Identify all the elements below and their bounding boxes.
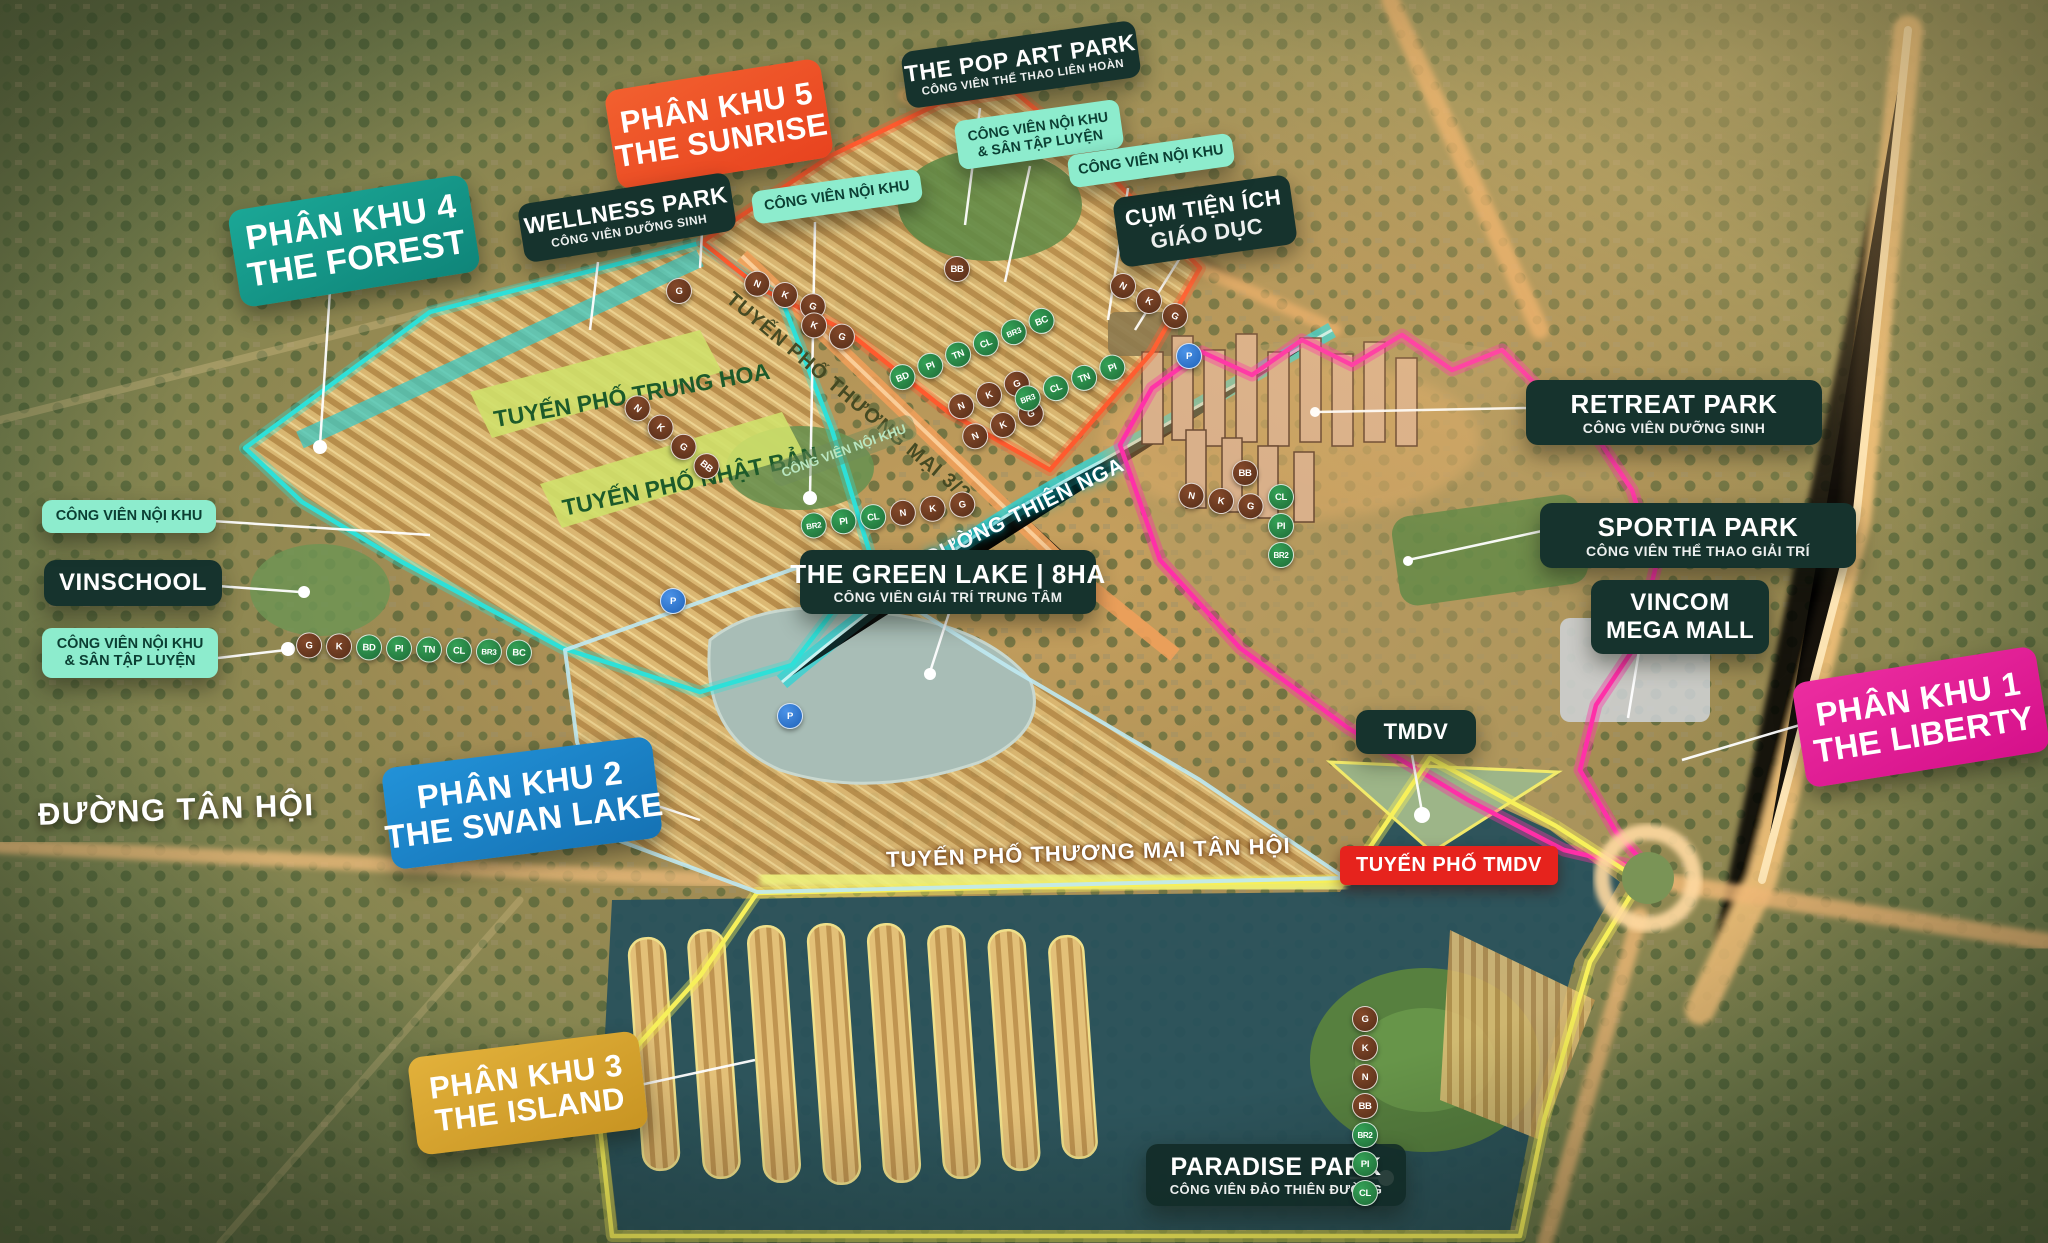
amenity-marker-k: K [1206, 486, 1236, 516]
amenity-marker-tn: TN [416, 636, 443, 663]
amenity-marker-bb: BB [1232, 460, 1258, 486]
park-subtitle: CÔNG VIÊN GIẢI TRÍ TRUNG TÂM [834, 590, 1063, 605]
park-badge-retreat[interactable]: RETREAT PARK CÔNG VIÊN DƯỠNG SINH [1526, 380, 1822, 445]
amenity-marker-g: G [1235, 491, 1265, 521]
amenity-marker-cl: CL [1268, 484, 1294, 510]
amenity-marker-p: P [660, 588, 686, 614]
amenity-marker-g: G [666, 278, 692, 304]
amenity-marker-p: P [777, 703, 803, 729]
amenity-marker-br2: BR2 [1268, 542, 1294, 568]
facility-label: TMDV [1384, 719, 1449, 745]
amenity-marker-group: GKNBBBR2PICL [1352, 1006, 1378, 1206]
amenity-marker-n: N [1352, 1064, 1378, 1090]
amenity-marker-bc: BC [505, 639, 532, 666]
masterplan-map: TUYẾN PHỐ TRUNG HOA TUYẾN PHỐ NHẬT BẢN T… [0, 0, 2048, 1243]
amenity-marker-group: CLPIBR2 [1268, 484, 1294, 568]
amenity-marker-g: G [948, 490, 977, 519]
amenity-marker-group: G [666, 278, 692, 304]
amenity-marker-group: P [777, 703, 803, 729]
park-badge-sportia[interactable]: SPORTIA PARK CÔNG VIÊN THỂ THAO GIẢI TRÍ [1540, 503, 1856, 568]
facility-line1: VINCOM [1630, 589, 1730, 617]
facility-line2: MEGA MALL [1606, 617, 1754, 645]
street-badge-tmdv[interactable]: TUYẾN PHỐ TMDV [1340, 846, 1558, 885]
amenity-marker-bd: BD [356, 634, 383, 661]
amenity-marker-bb: BB [1352, 1093, 1378, 1119]
amenity-marker-pi: PI [1268, 513, 1294, 539]
park-title: RETREAT PARK [1570, 389, 1777, 420]
amenity-marker-cl: CL [446, 637, 473, 664]
amenity-marker-cl: CL [1352, 1180, 1378, 1206]
amenity-marker-br3: BR3 [476, 638, 503, 665]
mint-badge-noi-khu-left[interactable]: CÔNG VIÊN NỘI KHU [42, 500, 216, 533]
amenity-marker-pi: PI [829, 507, 858, 536]
amenity-marker-g: G [296, 632, 323, 659]
park-title: SPORTIA PARK [1598, 512, 1799, 543]
park-title: THE GREEN LAKE | 8HA [790, 559, 1105, 590]
amenity-marker-pi: PI [386, 635, 413, 662]
park-badge-green-lake[interactable]: THE GREEN LAKE | 8HA CÔNG VIÊN GIẢI TRÍ … [800, 550, 1096, 614]
amenity-marker-br2: BR2 [799, 511, 828, 540]
amenity-marker-pi: PI [1352, 1151, 1378, 1177]
mint-badge-noi-khu-san-left[interactable]: CÔNG VIÊN NỘI KHU & SÂN TẬP LUYỆN [42, 628, 218, 678]
park-subtitle: CÔNG VIÊN DƯỠNG SINH [1583, 420, 1765, 436]
facility-badge-vinschool[interactable]: VINSCHOOL [44, 560, 222, 606]
amenity-marker-cl: CL [858, 502, 887, 531]
park-subtitle: CÔNG VIÊN ĐẢO THIÊN ĐƯỜNG [1170, 1182, 1382, 1197]
amenity-marker-p: P [1176, 343, 1202, 369]
amenity-marker-g: G [1352, 1006, 1378, 1032]
amenity-marker-k: K [1352, 1035, 1378, 1061]
amenity-marker-group: P [1176, 343, 1202, 369]
amenity-marker-br2: BR2 [1352, 1122, 1378, 1148]
facility-badge-tmdv[interactable]: TMDV [1356, 710, 1476, 754]
facility-badge-vincom-mega-mall[interactable]: VINCOM MEGA MALL [1591, 580, 1769, 654]
amenity-marker-group: BB [1232, 460, 1258, 486]
amenity-marker-k: K [918, 494, 947, 523]
amenity-marker-bb: BB [944, 256, 970, 282]
amenity-marker-n: N [1176, 481, 1206, 511]
park-subtitle: CÔNG VIÊN THỂ THAO GIẢI TRÍ [1586, 543, 1810, 559]
amenity-marker-n: N [888, 498, 917, 527]
amenity-marker-group: BB [944, 256, 970, 282]
amenity-marker-group: P [660, 588, 686, 614]
facility-label: VINSCHOOL [59, 569, 207, 597]
amenity-marker-k: K [326, 633, 353, 660]
park-title: PARADISE PARK [1170, 1153, 1381, 1182]
